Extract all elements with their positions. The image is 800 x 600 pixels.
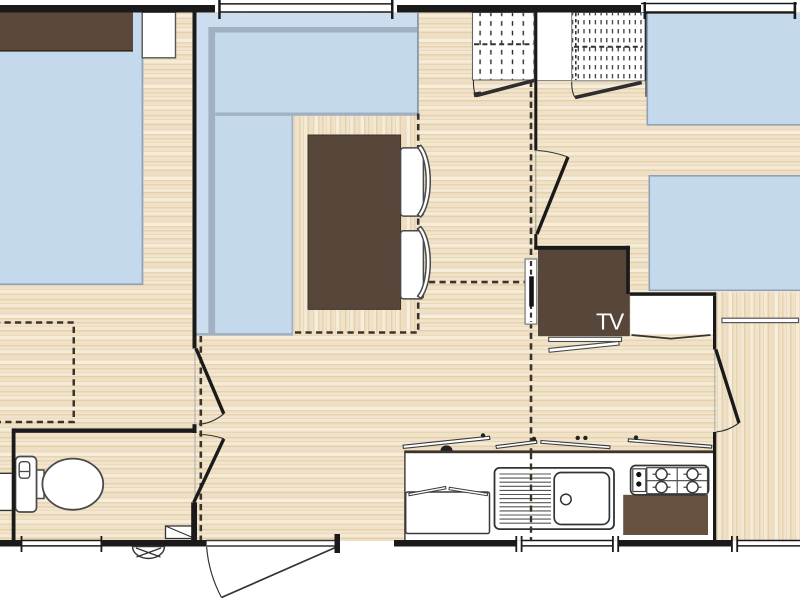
svg-text:TV: TV <box>596 308 625 334</box>
